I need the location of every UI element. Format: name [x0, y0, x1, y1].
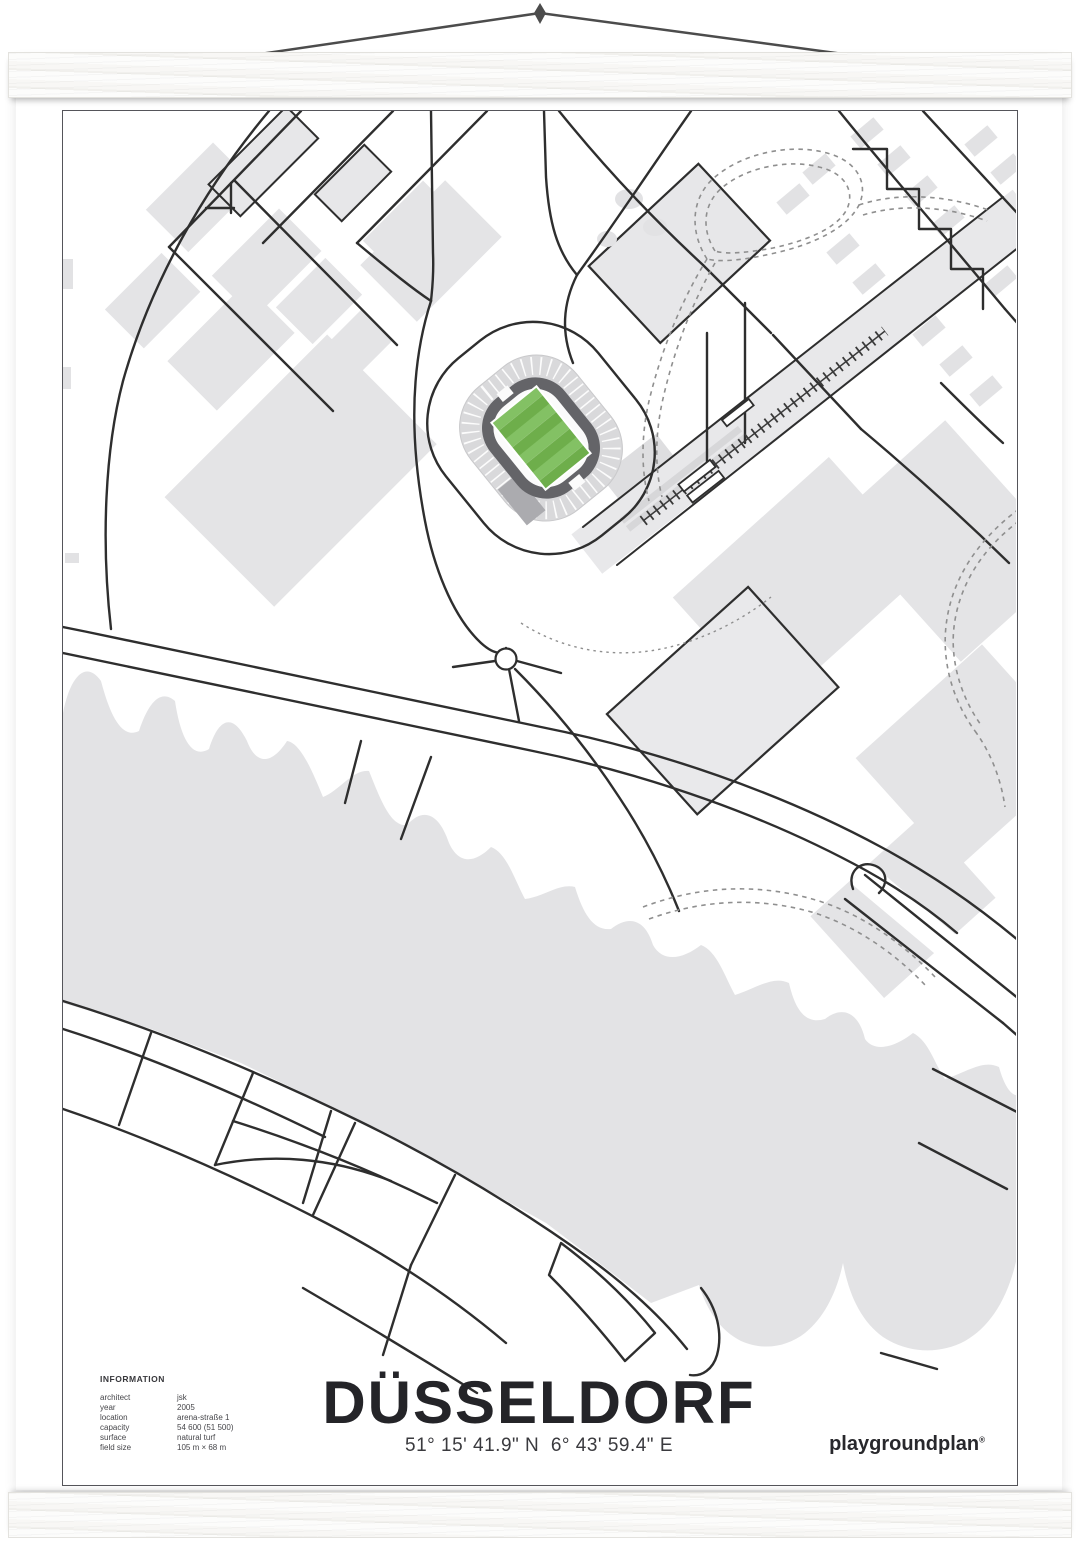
brand-logo: playgroundplan® [829, 1433, 985, 1456]
roundabout [496, 649, 517, 670]
string-apex-bead [534, 3, 546, 24]
city-title: DÜSSELDORF [16, 1368, 1062, 1437]
hanger-bar-bottom [8, 1492, 1072, 1538]
brand-mark: ® [979, 1435, 985, 1444]
hanger-bar-top [8, 52, 1072, 98]
stadium-map [63, 111, 1016, 1484]
product-scene: INFORMATION architect jsk year 2005 loca… [0, 0, 1080, 1547]
brand-name: playgroundplan [829, 1433, 979, 1455]
poster-sheet: INFORMATION architect jsk year 2005 loca… [16, 58, 1062, 1490]
map-border [62, 110, 1018, 1486]
